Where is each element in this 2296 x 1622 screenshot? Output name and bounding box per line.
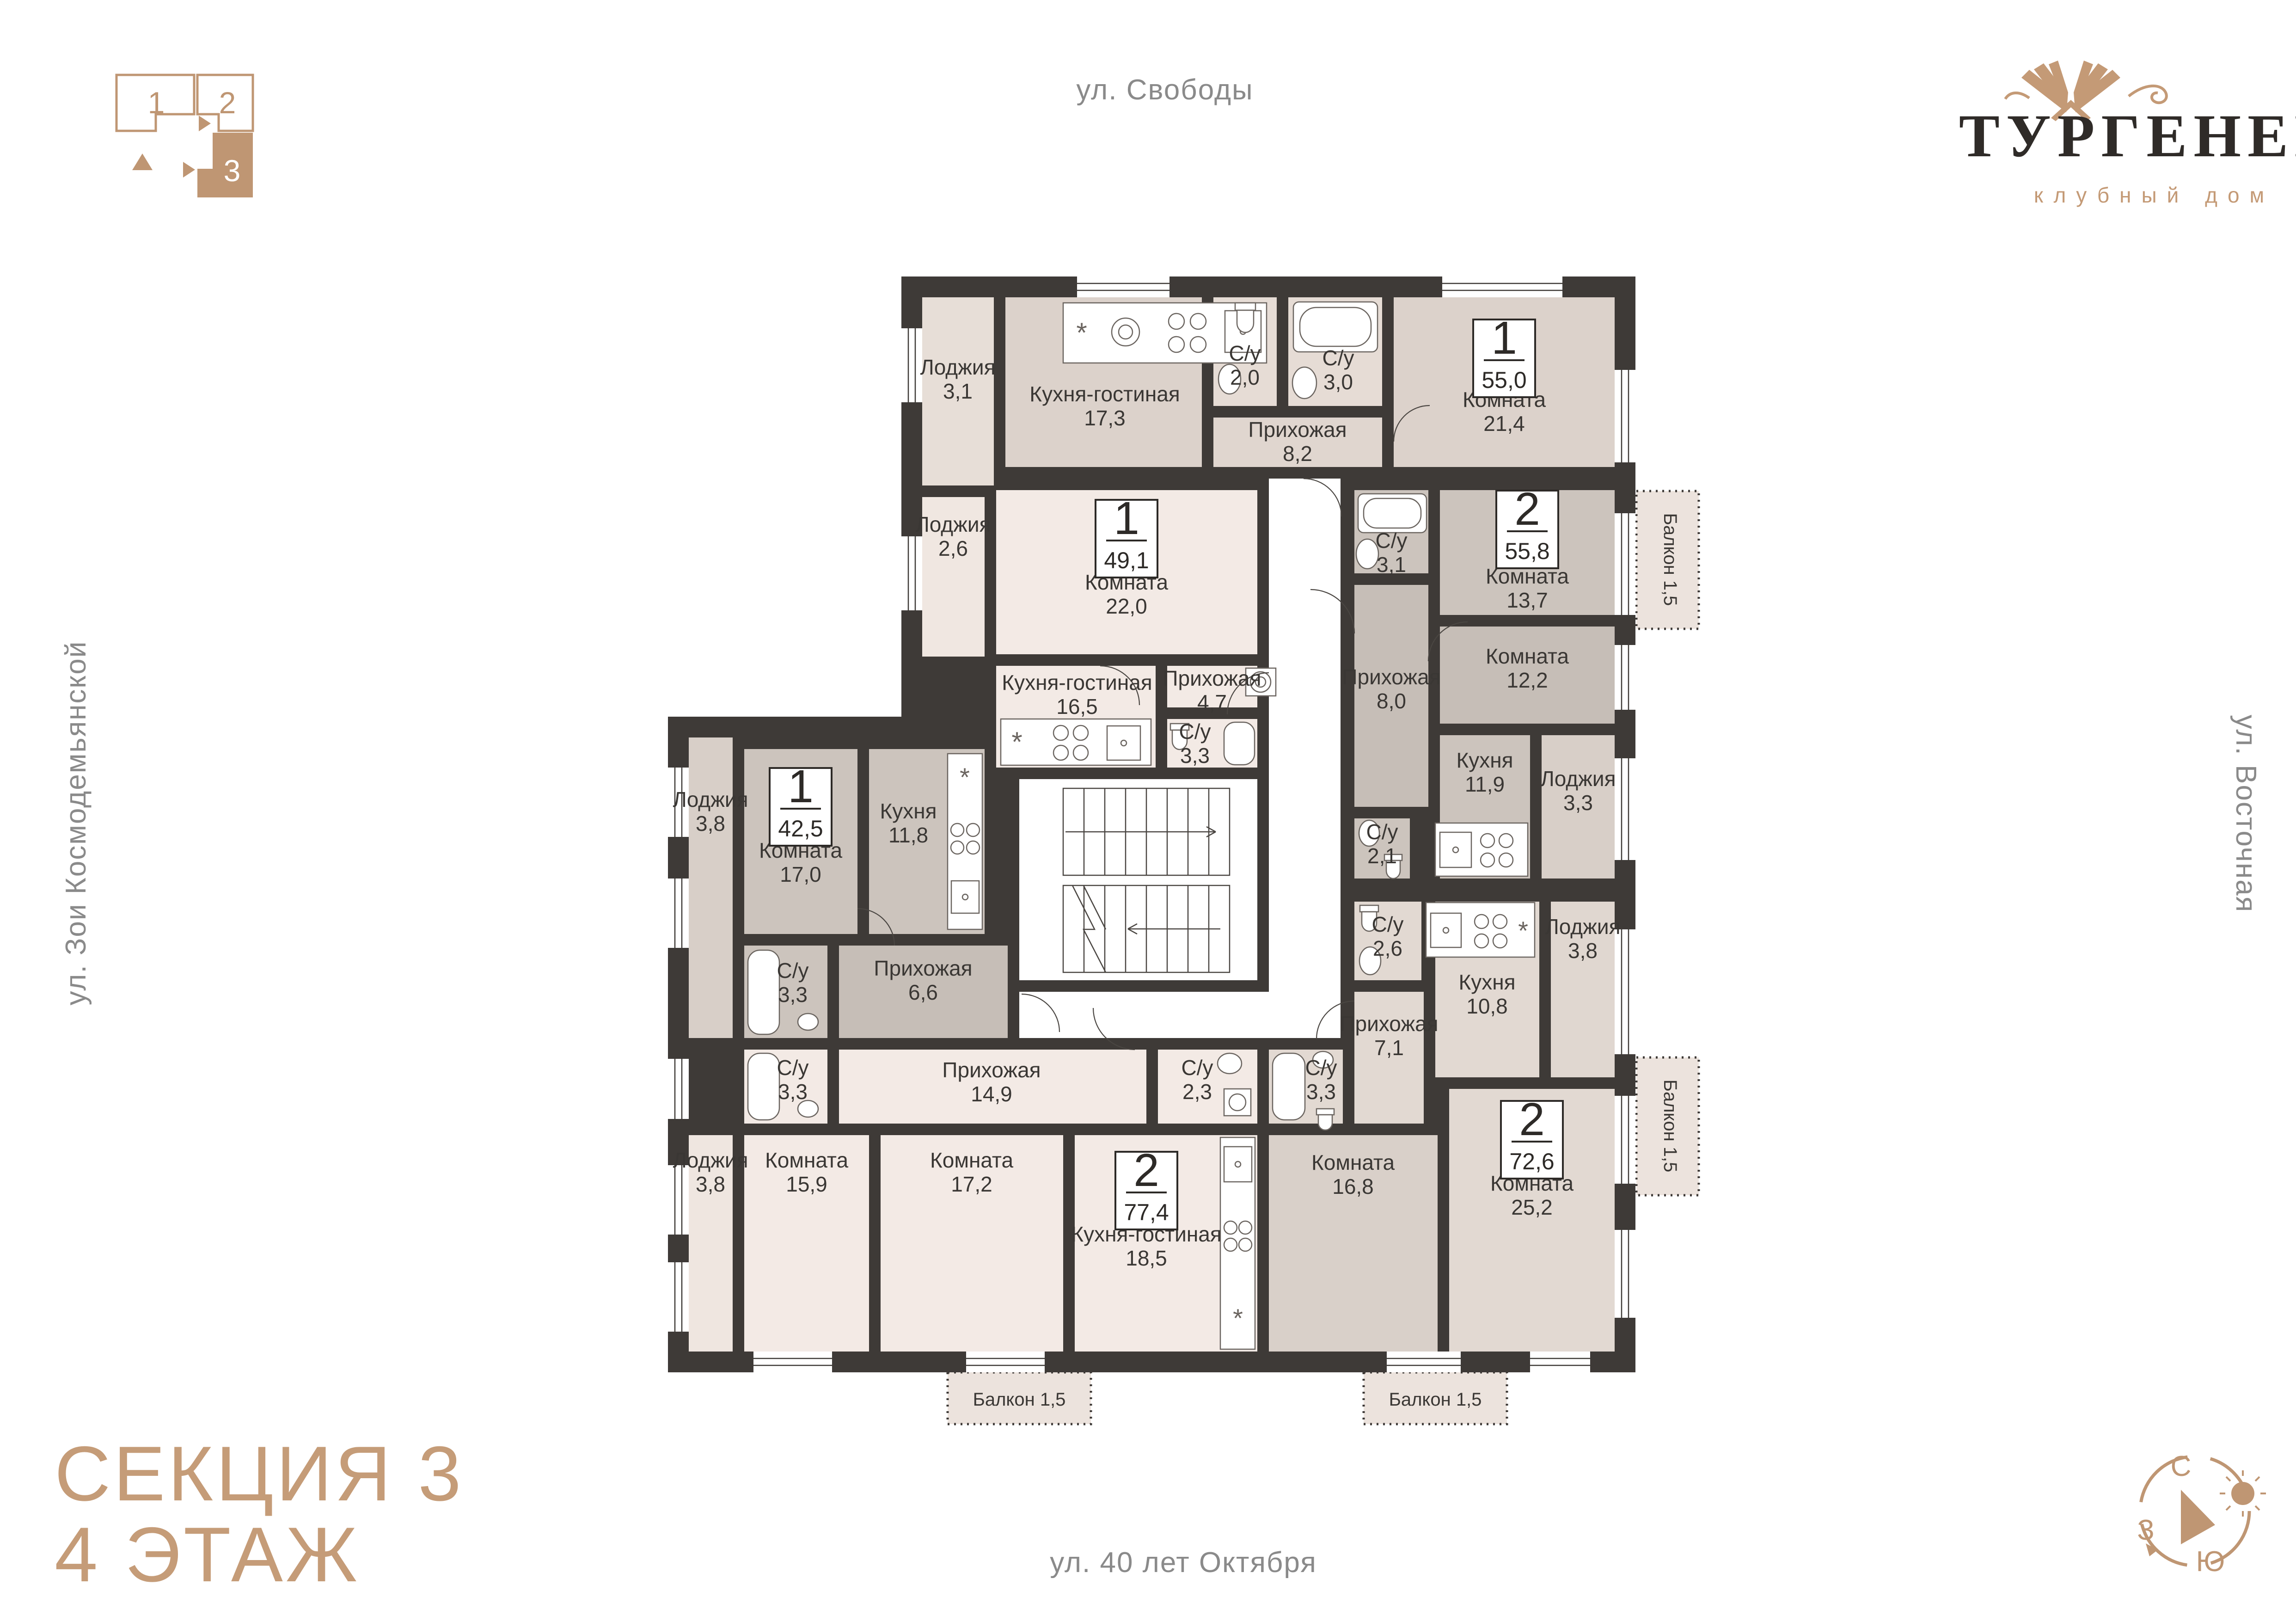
bathtub-icon <box>748 950 779 1034</box>
section-nav: 1 2 3 <box>116 75 253 197</box>
compass-south: Ю <box>2196 1546 2225 1578</box>
room-area: 3,3 <box>1563 791 1593 815</box>
room-name: Лоджия <box>1541 767 1616 791</box>
apartment-badge-area: 55,0 <box>1482 367 1526 393</box>
apartment-badge-rooms: 2 <box>1519 1094 1545 1145</box>
compass: С З Ю <box>2137 1450 2266 1578</box>
balcony-label: Балкон 1,5 <box>1660 513 1680 606</box>
window-icon <box>753 1352 832 1372</box>
window-icon <box>1077 276 1169 297</box>
window-icon <box>966 1352 1045 1372</box>
room-area: 3,3 <box>778 1080 808 1104</box>
street-right: ул. Восточная <box>2230 715 2262 913</box>
logo: ТУРГЕНЕВ клубный дом <box>1959 61 2296 207</box>
room-area: 8,0 <box>1377 689 1406 713</box>
room-area: 21,4 <box>1483 412 1525 436</box>
room-name: Комната <box>1311 1150 1395 1174</box>
bathtub-icon <box>1224 722 1255 765</box>
room-corridor <box>1269 479 1341 1038</box>
room-name: Комната <box>1486 644 1569 668</box>
window-icon <box>901 328 922 402</box>
room-area: 2,1 <box>1367 844 1397 868</box>
street-left: ул. Зои Космодемьянской <box>60 641 92 1006</box>
fridge-icon: * <box>1518 916 1528 945</box>
section-nav-label-1: 1 <box>148 86 165 120</box>
footer-floor: 4 ЭТАЖ <box>55 1511 360 1598</box>
street-bottom: ул. 40 лет Октября <box>1050 1547 1317 1579</box>
room-area: 3,3 <box>778 983 808 1007</box>
room-area: 15,9 <box>786 1172 827 1196</box>
balcony-label: Балкон 1,5 <box>1389 1389 1482 1410</box>
room-area: 3,0 <box>1323 370 1353 394</box>
sink-icon <box>798 1014 818 1030</box>
room-area: 13,7 <box>1506 588 1548 612</box>
room-name: Кухня <box>1458 970 1515 994</box>
room-area: 17,2 <box>951 1172 992 1196</box>
window-icon <box>1615 645 1635 710</box>
room-area: 22,0 <box>1106 594 1147 618</box>
window-icon <box>668 1165 689 1235</box>
apartment-badge-rooms: 1 <box>1114 492 1139 544</box>
apartment-badge-rooms: 2 <box>1514 483 1540 535</box>
room-name: С/у <box>1366 820 1398 844</box>
window-icon <box>901 536 922 610</box>
balcony-label: Балкон 1,5 <box>1660 1080 1680 1173</box>
room-name: Лоджия <box>920 355 996 379</box>
room-area: 16,8 <box>1332 1174 1374 1198</box>
compass-north: С <box>2171 1450 2192 1482</box>
room-area: 17,0 <box>780 862 821 886</box>
room-name: Прихожая <box>1340 1012 1438 1036</box>
room-name: С/у <box>1179 719 1211 743</box>
room-area: 16,5 <box>1056 694 1098 719</box>
window-icon <box>668 1059 689 1119</box>
window-icon <box>668 879 689 948</box>
room-name: Прихожая <box>874 956 972 980</box>
fridge-icon: * <box>1011 726 1022 757</box>
room-name: С/у <box>1376 528 1408 553</box>
room-name: С/у <box>1372 912 1404 936</box>
room-name: Прихожая <box>1248 418 1347 442</box>
room-area: 6,6 <box>908 980 938 1004</box>
room-area: 2,6 <box>1373 936 1402 960</box>
sink-icon <box>1218 1053 1242 1074</box>
room-area: 3,1 <box>943 379 973 403</box>
room-area: 2,6 <box>938 536 968 560</box>
room-name: Прихожая <box>1163 666 1261 690</box>
compass-west: З <box>2137 1514 2154 1546</box>
toilet-icon <box>1235 303 1255 332</box>
window-icon <box>1387 1352 1461 1372</box>
window-icon <box>1615 513 1635 615</box>
balcony-label: Балкон 1,5 <box>973 1389 1066 1410</box>
bathtub-icon <box>748 1053 779 1120</box>
room-area: 11,9 <box>1465 772 1505 796</box>
room-area: 3,3 <box>1306 1080 1336 1104</box>
window-icon <box>1615 1230 1635 1318</box>
room-area: 18,5 <box>1126 1246 1167 1270</box>
room-area: 17,3 <box>1084 406 1126 430</box>
room-area: 2,0 <box>1230 365 1260 389</box>
room-name: С/у <box>1229 341 1261 365</box>
room-name: С/у <box>1322 346 1354 370</box>
room-area: 12,2 <box>1506 668 1548 692</box>
logo-subtitle: клубный дом <box>2034 183 2274 207</box>
washer-icon <box>1224 1089 1251 1116</box>
apartment-badge-area: 49,1 <box>1104 547 1149 573</box>
apartment-badge-area: 42,5 <box>778 816 823 842</box>
room-lobby <box>1019 992 1341 1038</box>
room-area: 3,8 <box>1568 939 1598 963</box>
room-area: 3,1 <box>1377 553 1406 577</box>
room-name: Комната <box>765 1148 849 1172</box>
room-area: 8,2 <box>1283 442 1312 466</box>
room-name: Лоджия <box>673 787 748 811</box>
room-name: С/у <box>777 1056 809 1080</box>
logo-flourish-right <box>2129 86 2167 103</box>
room-name: Прихожая <box>1342 665 1440 689</box>
window-icon <box>1615 758 1635 860</box>
room-area: 25,2 <box>1511 1195 1553 1219</box>
fridge-icon: * <box>1076 317 1087 348</box>
street-top: ул. Свободы <box>1076 74 1253 106</box>
room-name: Прихожая <box>942 1058 1041 1082</box>
bathtub-icon <box>1273 1053 1305 1120</box>
room-area: 2,3 <box>1182 1080 1212 1104</box>
room-area: 4,7 <box>1197 690 1227 714</box>
arrow-right-icon <box>183 162 195 178</box>
room-area: 7,1 <box>1374 1036 1404 1060</box>
room-name: Кухня <box>1456 748 1513 772</box>
sink-icon <box>1292 367 1316 399</box>
room-area: 14,9 <box>971 1082 1012 1106</box>
room-name: Кухня-гостиная <box>1029 382 1180 406</box>
arrow-up-icon <box>132 154 153 170</box>
fridge-icon: * <box>1233 1303 1243 1333</box>
window-icon <box>1530 1352 1590 1372</box>
window-icon <box>1442 276 1562 297</box>
apartment-badge-rooms: 1 <box>1491 312 1517 364</box>
window-icon <box>668 1262 689 1332</box>
apartment-badge-area: 55,8 <box>1505 538 1549 564</box>
section-nav-label-3: 3 <box>224 154 241 188</box>
room-name: Комната <box>930 1148 1014 1172</box>
sun-icon <box>2220 1470 2266 1517</box>
window-icon <box>1615 929 1635 1054</box>
room-area: 3,3 <box>1180 743 1210 768</box>
room-area: 10,8 <box>1466 994 1508 1018</box>
room-name: С/у <box>1182 1056 1213 1080</box>
logo-flourish-left <box>2005 93 2029 99</box>
window-icon <box>1615 370 1635 462</box>
logo-title: ТУРГЕНЕВ <box>1959 102 2296 170</box>
room-name: Кухня-гостиная <box>1002 670 1152 694</box>
apartment-badge-area: 77,4 <box>1124 1199 1169 1225</box>
room-name: Кухня <box>880 799 937 823</box>
room-stairwell <box>1019 779 1257 980</box>
apartment-badge-rooms: 2 <box>1133 1144 1159 1196</box>
room-area: 3,8 <box>696 811 725 836</box>
window-icon <box>1615 1096 1635 1184</box>
room-name: Лоджия <box>1545 915 1621 939</box>
arrow-right-icon <box>199 116 211 131</box>
fridge-icon: * <box>960 762 970 792</box>
room-loggia-3-8-left <box>689 737 733 1038</box>
toilet-icon <box>1316 1109 1334 1130</box>
section-nav-label-2: 2 <box>219 86 236 120</box>
footer-section: СЕКЦИЯ 3 <box>55 1430 464 1517</box>
room-area: 11,8 <box>888 823 928 847</box>
apartment-badge-rooms: 1 <box>788 761 814 812</box>
room-name: С/у <box>1305 1056 1337 1080</box>
room-name: Лоджия <box>673 1148 748 1172</box>
compass-pointer-icon <box>2181 1490 2215 1544</box>
room-name: Лоджия <box>916 512 991 536</box>
room-name: С/у <box>777 958 809 983</box>
room-area: 3,8 <box>696 1172 725 1196</box>
apartment-badge-area: 72,6 <box>1509 1149 1554 1174</box>
